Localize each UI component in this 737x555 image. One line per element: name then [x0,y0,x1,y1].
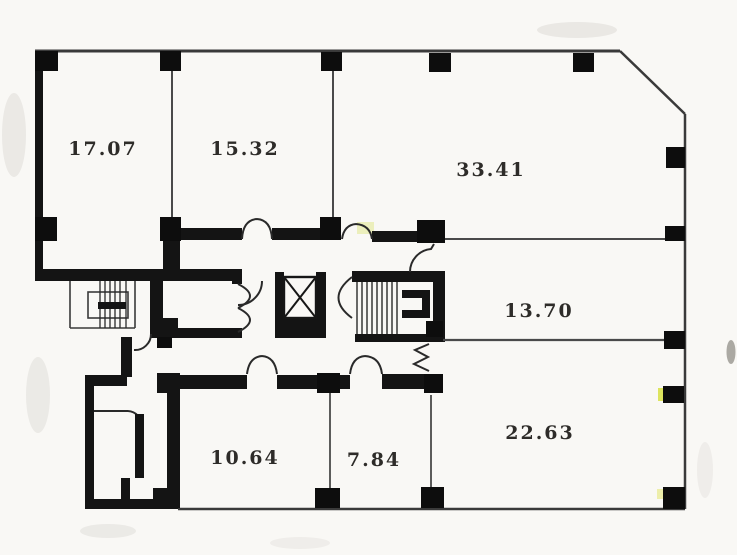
tsubo-unit-icon [282,449,300,467]
machine-room-fixture [163,318,178,331]
floor-plan-drawing [0,0,737,555]
room-label-13-70: 13.70 [504,300,594,322]
room-area-value: 13.70 [504,300,574,322]
room-label-7-84: 7.84 [347,449,421,471]
room-label-10-64: 10.64 [210,447,300,469]
room-area-value: 33.41 [456,159,526,181]
room-label-22-63: 22.63 [505,422,595,444]
room-area-value: 10.64 [210,447,280,469]
restroom-partitions [94,411,144,508]
room-label-15-32: 15.32 [210,138,300,160]
tsubo-unit-icon [528,161,546,179]
tsubo-unit-icon [576,302,594,320]
main-staircase-icon [357,282,430,334]
room-area-value: 17.07 [68,138,138,160]
tsubo-unit-icon [403,451,421,469]
folding-door-symbol [414,344,429,371]
room-area-value: 7.84 [347,449,401,471]
tsubo-unit-icon [577,424,595,442]
chamfered-corner-wall [620,51,685,114]
tsubo-unit-icon [282,140,300,158]
room-area-value: 22.63 [505,422,575,444]
external-staircase-icon [70,281,135,328]
room-label-17-07: 17.07 [68,138,158,160]
elevator-icon [284,277,316,318]
room-area-value: 15.32 [210,138,280,160]
tsubo-unit-icon [140,140,158,158]
floor-plan-canvas: 17.07 15.32 33.41 13.70 22.63 10.64 7.84 [0,0,737,555]
room-label-33-41: 33.41 [456,159,546,181]
